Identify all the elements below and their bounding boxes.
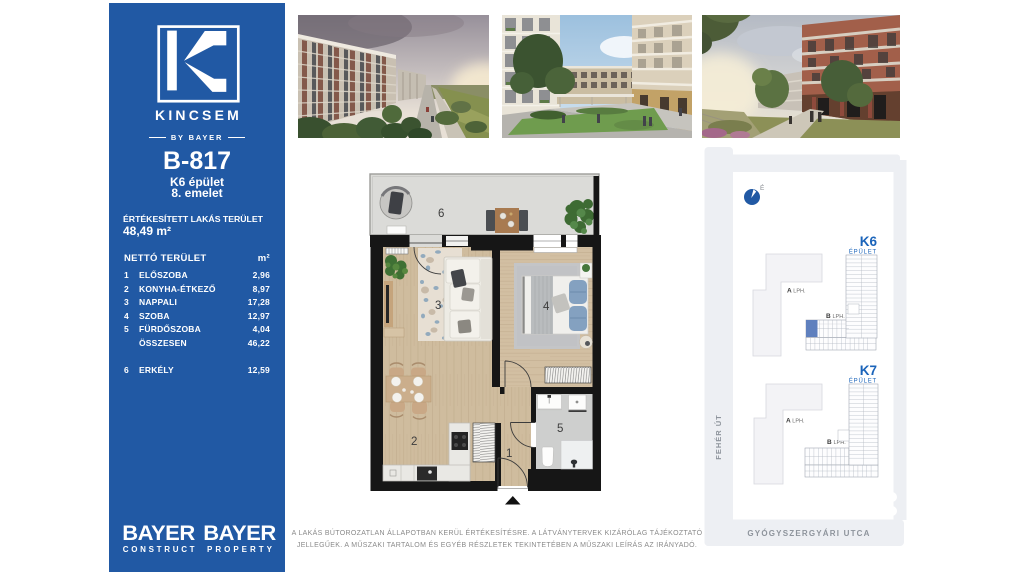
svg-text:É: É [760, 183, 765, 192]
svg-text:K7: K7 [860, 363, 877, 378]
svg-text:2: 2 [411, 436, 417, 448]
svg-text:GYÓGYSZERGYÁRI UTCA: GYÓGYSZERGYÁRI UTCA [747, 529, 870, 538]
svg-text:A LPH.: A LPH. [787, 288, 806, 295]
svg-text:4: 4 [543, 301, 550, 313]
svg-text:1: 1 [506, 448, 512, 460]
svg-text:ÉPÜLET: ÉPÜLET [849, 378, 877, 385]
svg-text:K6: K6 [860, 234, 878, 249]
svg-text:6: 6 [438, 208, 444, 220]
svg-text:ÉPÜLET: ÉPÜLET [849, 249, 877, 256]
svg-text:FEHÉR ÚT: FEHÉR ÚT [714, 414, 723, 460]
svg-text:B LPH.: B LPH. [826, 313, 845, 320]
svg-text:5: 5 [557, 423, 563, 435]
svg-text:3: 3 [435, 300, 441, 312]
svg-text:A LPH.: A LPH. [786, 418, 805, 425]
